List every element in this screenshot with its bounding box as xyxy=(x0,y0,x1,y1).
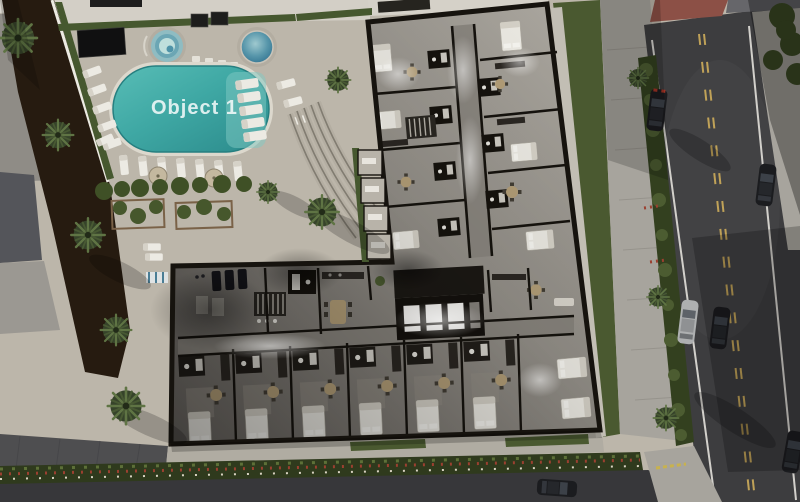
swimming-pool: Object 1 xyxy=(111,64,271,154)
site-plan-svg: Object 1 xyxy=(0,0,800,502)
cabana xyxy=(191,14,208,27)
spa-pool-2 xyxy=(237,27,277,67)
pool-label: Object 1 xyxy=(151,97,238,119)
sunken-lounge-screen xyxy=(77,27,126,57)
rooftop-dark-panel xyxy=(90,0,142,7)
garden-lounger xyxy=(143,243,161,250)
cabana xyxy=(211,12,228,25)
aerial-site-render: Object 1 xyxy=(0,0,800,502)
car xyxy=(537,479,578,498)
garden-lounger xyxy=(145,253,163,260)
